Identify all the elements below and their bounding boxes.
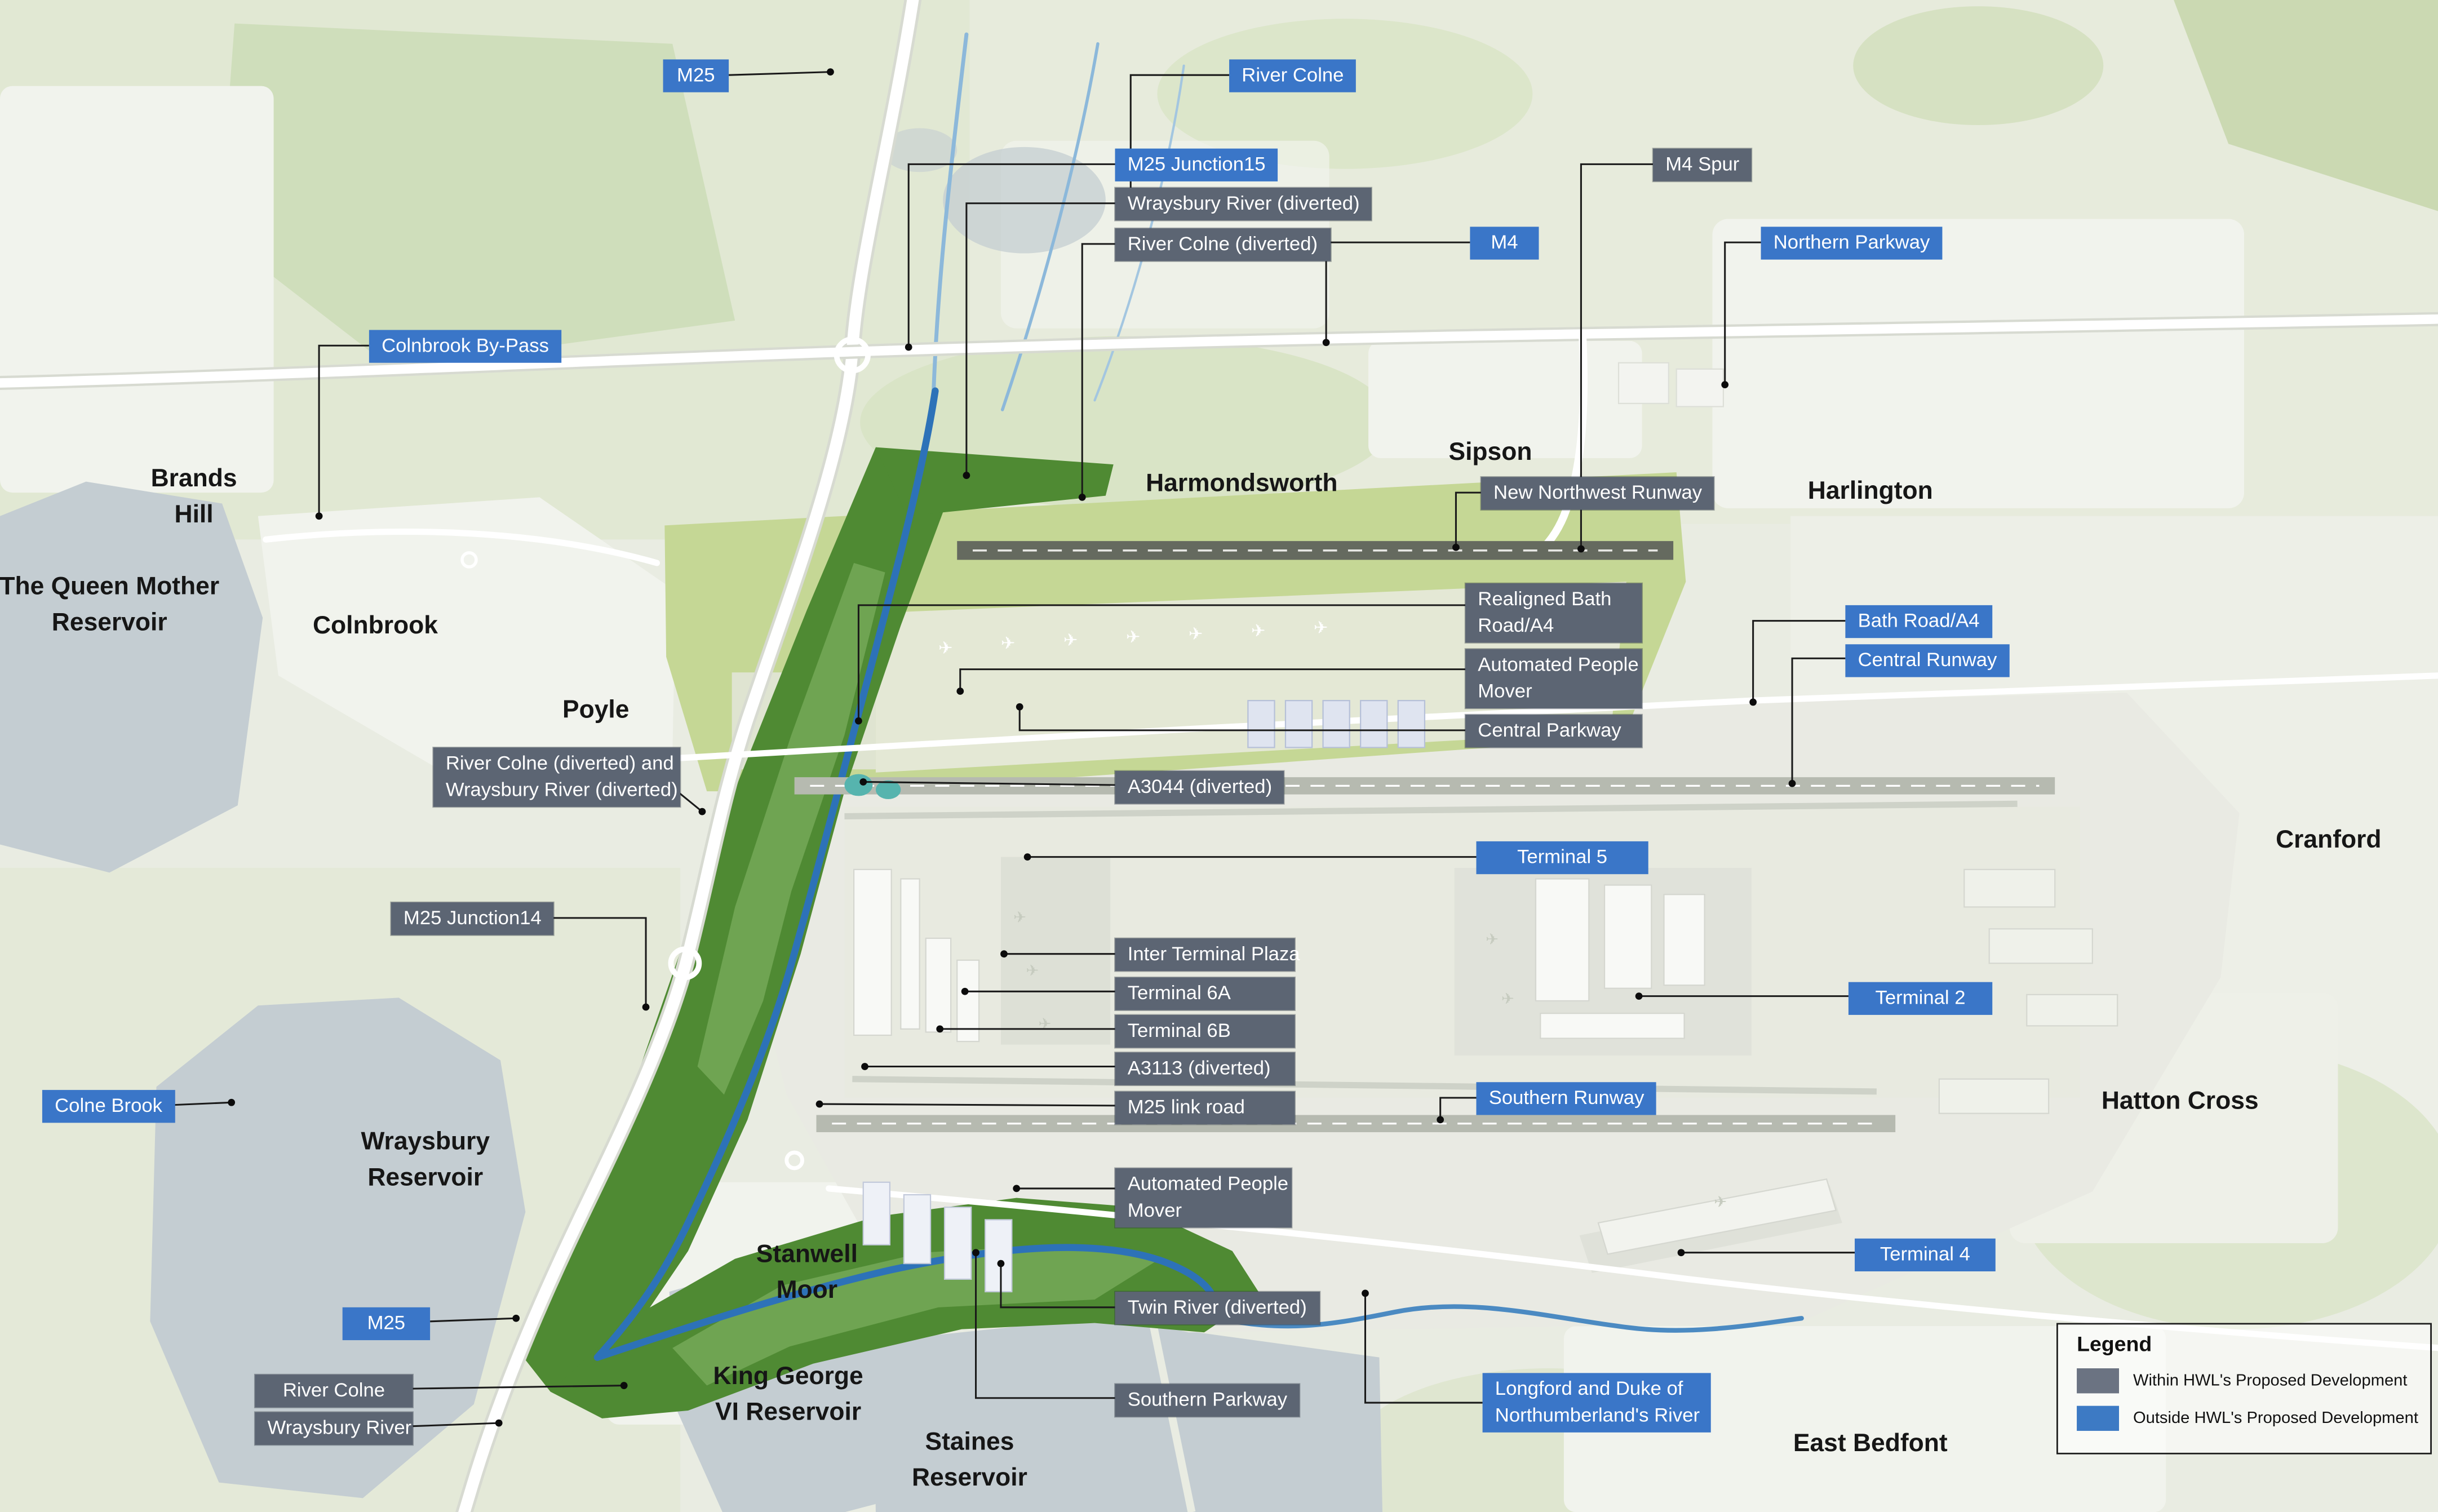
map-callout-line: River Colne (diverted) and: [446, 750, 668, 778]
map-callout-central-parkway: Central Parkway: [1465, 715, 1642, 747]
place-name-line: Hill: [151, 497, 237, 533]
map-callout-line: Longford and Duke of: [1495, 1376, 1699, 1403]
map-callout-terminal-6a: Terminal 6A: [1115, 977, 1295, 1009]
map-stage: ✈✈✈ ✈✈✈ ✈ ✈✈✈ ✈✈✈ M25River ColneM25 Junc…: [0, 0, 2438, 1512]
place-name-brands-hill: BrandsHill: [151, 462, 237, 534]
place-name-line: The Queen Mother: [0, 569, 219, 605]
map-callout-m25-link-road: M25 link road: [1115, 1092, 1295, 1124]
legend-item-label: Within HWL's Proposed Development: [2133, 1372, 2408, 1390]
map-callout-wraysbury-river: Wraysbury River: [255, 1412, 413, 1444]
place-name-line: Harmondsworth: [1146, 466, 1337, 502]
place-name-line: East Bedfont: [1793, 1426, 1948, 1462]
place-name-the-queen-mother-reservoir: The Queen MotherReservoir: [0, 569, 219, 641]
place-name-poyle: Poyle: [562, 693, 629, 729]
map-callout-m25: M25: [663, 59, 729, 91]
place-name-harmondsworth: Harmondsworth: [1146, 466, 1337, 502]
map-callout-line: Realigned Bath: [1478, 586, 1629, 613]
map-callout-a3113-diverted: A3113 (diverted): [1115, 1053, 1295, 1085]
legend-swatch-within-icon: [2077, 1368, 2119, 1393]
map-callout-colne-brook: Colne Brook: [42, 1090, 175, 1122]
place-name-sipson: Sipson: [1448, 434, 1532, 471]
place-name-line: Reservoir: [0, 605, 219, 641]
map-callout-realigned-bath-road-a4: Realigned BathRoad/A4: [1465, 583, 1642, 642]
place-name-line: Moor: [756, 1273, 858, 1309]
map-callout-twin-river-diverted: Twin River (diverted): [1115, 1292, 1319, 1324]
map-callout-automated-people-mover: Automated PeopleMover: [1115, 1168, 1292, 1227]
place-name-harlington: Harlington: [1808, 474, 1933, 510]
map-callout-river-colne: River Colne: [255, 1374, 413, 1407]
labels-layer: M25River ColneM25 Junction15M4Northern P…: [0, 0, 2438, 1512]
place-name-stanwell-moor: StanwellMoor: [756, 1237, 858, 1309]
place-name-line: VI Reservoir: [713, 1395, 863, 1431]
legend-item-within: Within HWL's Proposed Development: [2077, 1368, 2414, 1393]
map-callout-terminal-2: Terminal 2: [1849, 982, 1992, 1014]
legend-item-label: Outside HWL's Proposed Development: [2133, 1409, 2418, 1427]
map-callout-m25: M25: [343, 1307, 430, 1340]
place-name-hatton-cross: Hatton Cross: [2102, 1084, 2259, 1120]
map-callout-southern-parkway: Southern Parkway: [1115, 1384, 1300, 1416]
map-callout-m4: M4: [1470, 227, 1539, 259]
place-name-line: Cranford: [2276, 823, 2381, 859]
legend: Legend Within HWL's Proposed Development…: [2056, 1323, 2432, 1455]
map-callout-new-northwest-runway: New Northwest Runway: [1481, 477, 1715, 509]
place-name-line: Stanwell: [756, 1237, 858, 1273]
place-name-line: Brands: [151, 462, 237, 498]
map-callout-line: Road/A4: [1478, 613, 1629, 641]
place-name-line: Colnbrook: [313, 608, 438, 644]
map-callout-inter-terminal-plaza: Inter Terminal Plaza: [1115, 938, 1295, 970]
place-name-line: King George: [713, 1359, 863, 1395]
map-callout-m25-junction15: M25 Junction15: [1115, 149, 1278, 181]
map-callout-terminal-6b: Terminal 6B: [1115, 1015, 1295, 1047]
place-name-line: Wraysbury: [361, 1124, 490, 1160]
place-name-king-george-vi-reservoir: King GeorgeVI Reservoir: [713, 1359, 863, 1431]
map-callout-terminal-5: Terminal 5: [1477, 841, 1648, 873]
place-name-line: Staines: [912, 1425, 1027, 1461]
legend-swatch-outside-icon: [2077, 1406, 2119, 1431]
place-name-line: Sipson: [1448, 434, 1532, 471]
map-callout-wraysbury-river-diverted: Wraysbury River (diverted): [1115, 188, 1372, 220]
map-callout-southern-runway: Southern Runway: [1477, 1082, 1657, 1114]
map-callout-central-runway: Central Runway: [1845, 644, 2009, 676]
map-callout-line: Wraysbury River (diverted): [446, 777, 668, 805]
map-callout-line: Automated People: [1128, 1170, 1279, 1198]
map-callout-line: Mover: [1478, 679, 1629, 706]
legend-title: Legend: [2077, 1332, 2414, 1356]
place-name-line: Poyle: [562, 693, 629, 729]
map-callout-m25-junction14: M25 Junction14: [391, 902, 554, 934]
map-callout-a3044-diverted: A3044 (diverted): [1115, 771, 1285, 803]
map-callout-terminal-4: Terminal 4: [1855, 1239, 1996, 1271]
place-name-cranford: Cranford: [2276, 823, 2381, 859]
place-name-line: Reservoir: [361, 1160, 490, 1196]
place-name-line: Harlington: [1808, 474, 1933, 510]
place-name-staines-reservoir: StainesReservoir: [912, 1425, 1027, 1497]
place-name-east-bedfont: East Bedfont: [1793, 1426, 1948, 1462]
place-name-wraysbury-reservoir: WraysburyReservoir: [361, 1124, 490, 1196]
map-callout-line: Northumberland's River: [1495, 1403, 1699, 1430]
map-callout-bath-road-a4: Bath Road/A4: [1845, 605, 1992, 637]
map-callout-river-colne-diverted-and-wraysbury-river-diverted: River Colne (diverted) andWraysbury Rive…: [433, 747, 680, 806]
map-callout-longford-and-duke-of-northumberland-s-river: Longford and Duke ofNorthumberland's Riv…: [1483, 1373, 1711, 1432]
map-callout-colnbrook-by-pass: Colnbrook By-Pass: [369, 330, 561, 362]
place-name-colnbrook: Colnbrook: [313, 608, 438, 644]
map-callout-line: Automated People: [1478, 651, 1629, 679]
place-name-line: Reservoir: [912, 1461, 1027, 1497]
map-callout-northern-parkway: Northern Parkway: [1761, 227, 1943, 259]
legend-item-outside: Outside HWL's Proposed Development: [2077, 1406, 2414, 1431]
map-callout-automated-people-mover: Automated PeopleMover: [1465, 649, 1642, 708]
map-callout-m4-spur: M4 Spur: [1653, 149, 1752, 181]
map-callout-line: Mover: [1128, 1198, 1279, 1226]
place-name-line: Hatton Cross: [2102, 1084, 2259, 1120]
map-callout-river-colne: River Colne: [1229, 59, 1357, 91]
map-callout-river-colne-diverted: River Colne (diverted): [1115, 228, 1331, 260]
